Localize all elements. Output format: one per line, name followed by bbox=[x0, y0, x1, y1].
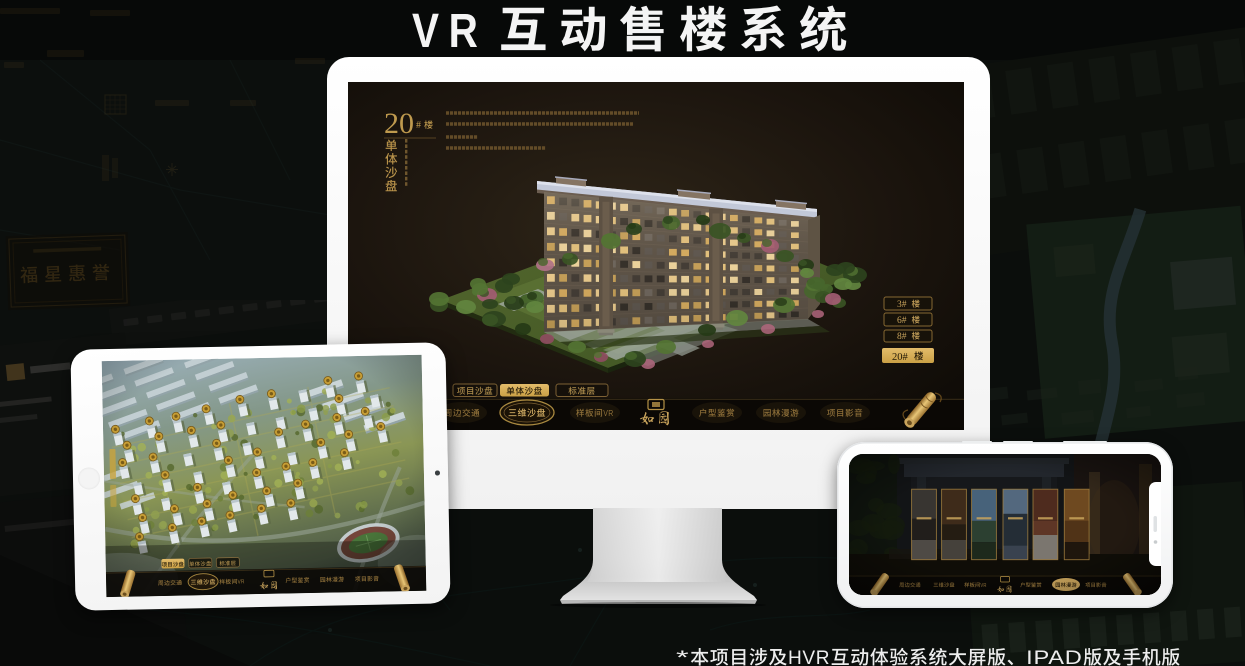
svg-text:*: * bbox=[676, 648, 690, 666]
svg-text:20#: 20# bbox=[892, 352, 909, 363]
svg-text:8#: 8# bbox=[897, 332, 907, 342]
svg-text:HVR: HVR bbox=[788, 648, 830, 666]
svg-text:VR: VR bbox=[412, 4, 488, 58]
svg-text:6#: 6# bbox=[897, 316, 907, 326]
svg-text:#: # bbox=[416, 120, 421, 131]
svg-text:VR: VR bbox=[603, 408, 614, 418]
svg-text:3#: 3# bbox=[897, 300, 907, 310]
svg-text:VR: VR bbox=[237, 579, 244, 585]
svg-text:20: 20 bbox=[384, 107, 414, 140]
svg-text:IPAD: IPAD bbox=[1026, 648, 1082, 666]
